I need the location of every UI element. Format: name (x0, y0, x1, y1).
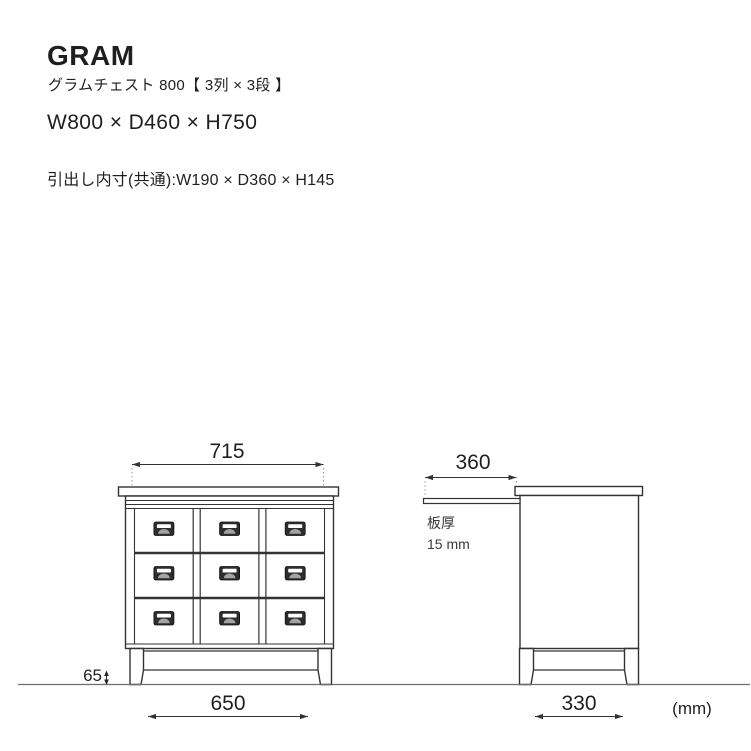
front-left-leg (130, 649, 144, 685)
dimension-line-715 (132, 462, 324, 486)
front-top-board (119, 487, 339, 496)
dimension-label-leg-clearance: 65 (52, 667, 102, 684)
furniture-dimension-drawing (0, 0, 751, 751)
side-right-leg (625, 649, 639, 685)
dimension-label-drawer-extension: 360 (433, 452, 513, 473)
spec-sheet-page: { "header": { "brand": "GRAM", "subtitle… (0, 0, 751, 751)
front-right-leg (318, 649, 332, 685)
side-top-board (515, 487, 643, 496)
dimension-label-base-width: 650 (188, 693, 268, 714)
side-body (520, 496, 639, 649)
dimension-line-65 (104, 671, 109, 686)
side-extended-board (424, 499, 521, 504)
board-thickness-value: 15 mm (427, 534, 470, 555)
side-left-leg (520, 649, 534, 685)
dimension-label-base-depth: 330 (539, 693, 619, 714)
board-thickness-note: 板厚 15 mm (427, 513, 470, 555)
dimension-label-top-width: 715 (187, 441, 267, 462)
board-thickness-label: 板厚 (427, 513, 470, 534)
dimension-line-360 (425, 475, 517, 497)
unit-label: (mm) (661, 700, 723, 717)
